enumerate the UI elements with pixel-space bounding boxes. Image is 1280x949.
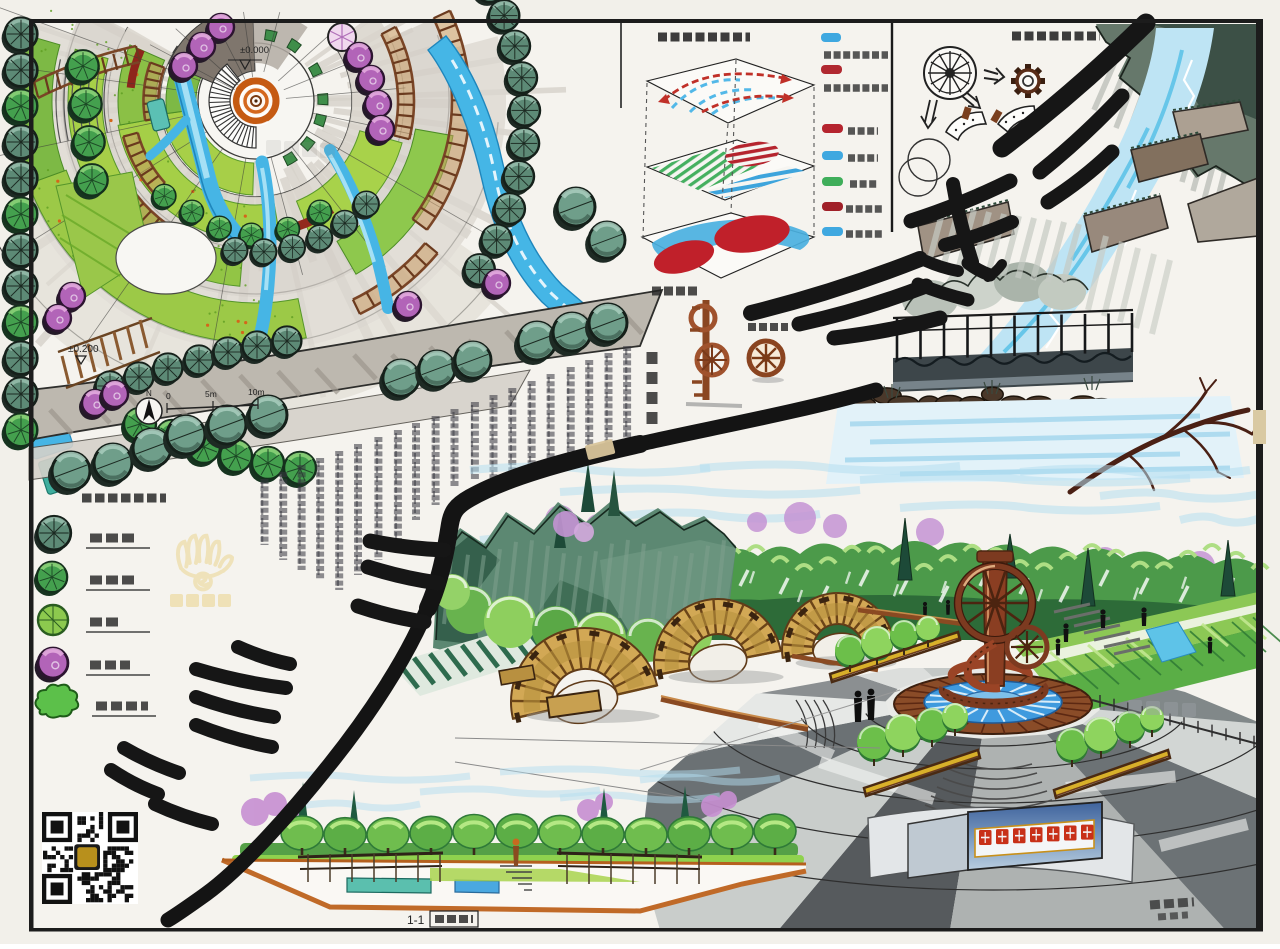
svg-text:N: N [146,389,152,398]
svg-text:5m: 5m [205,389,217,399]
svg-text:0: 0 [166,391,171,401]
svg-text:±0.000: ±0.000 [240,45,269,56]
svg-text:1-1: 1-1 [407,913,425,927]
svg-text:±0.200: ±0.200 [68,344,99,355]
svg-text:10m: 10m [248,387,265,397]
